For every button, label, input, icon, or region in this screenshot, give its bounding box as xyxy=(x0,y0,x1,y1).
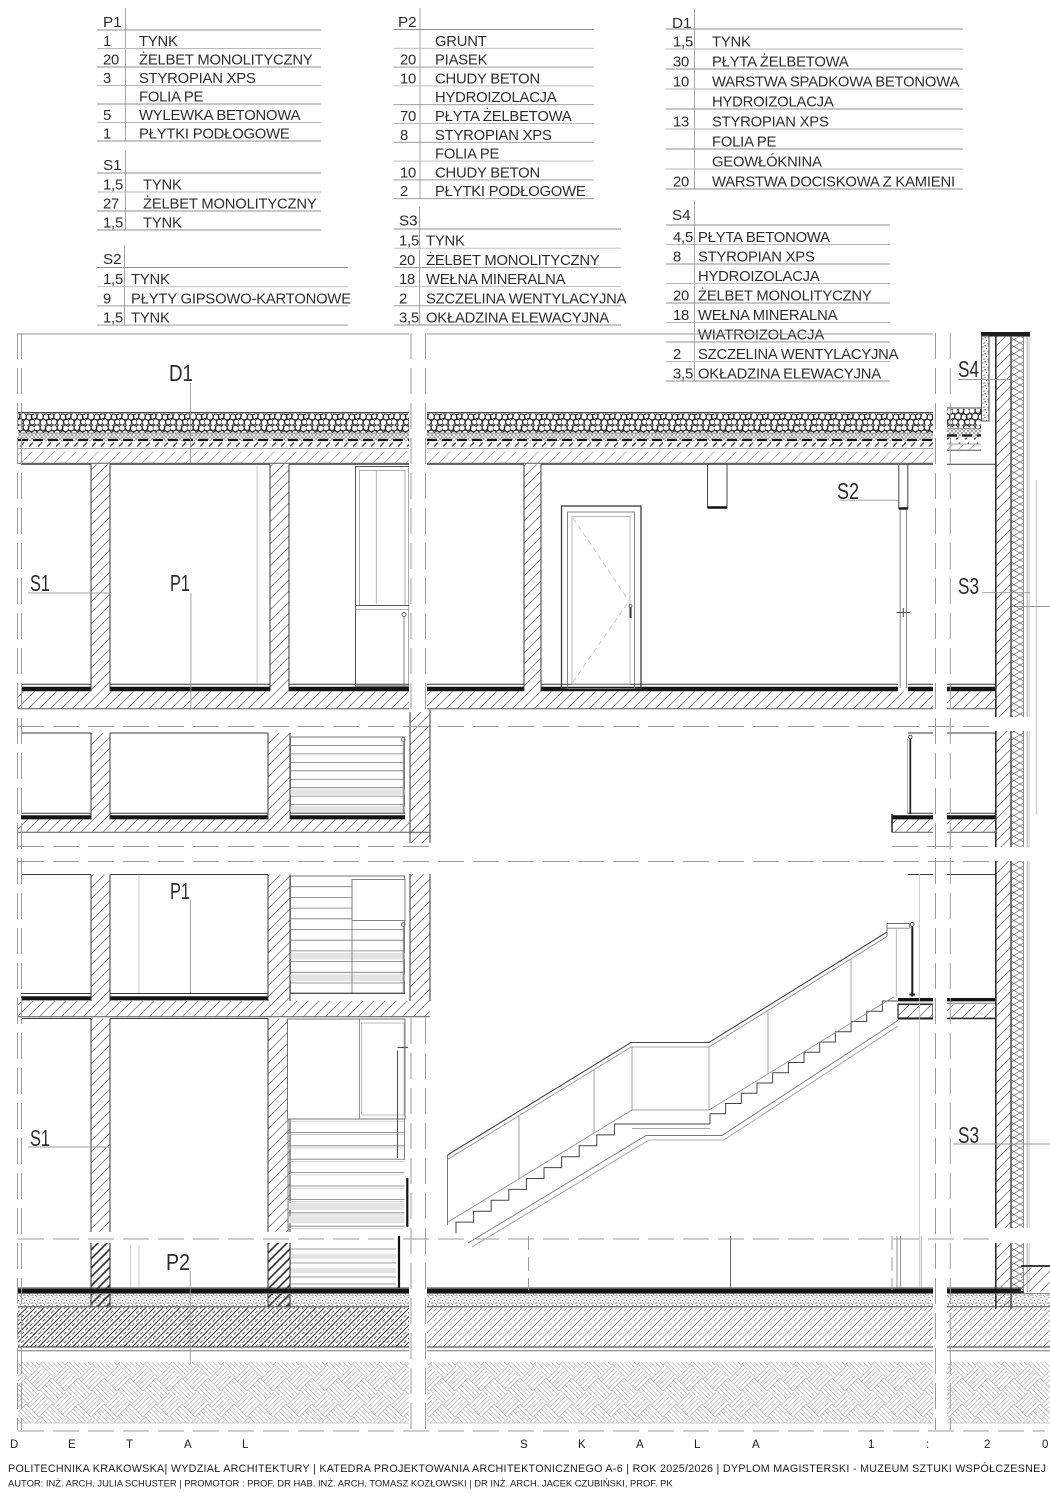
svg-text:T: T xyxy=(126,1439,133,1451)
svg-text:AUTOR: INŻ. ARCH. JULIA SCHUST: AUTOR: INŻ. ARCH. JULIA SCHUSTER | PROMO… xyxy=(8,1478,673,1489)
svg-text:WEŁNA MINERALNA: WEŁNA MINERALNA xyxy=(426,272,566,288)
svg-text:TYNK: TYNK xyxy=(426,234,465,250)
svg-text:18: 18 xyxy=(399,272,415,288)
svg-text:D1: D1 xyxy=(169,360,193,386)
svg-text:2: 2 xyxy=(984,1439,990,1451)
svg-text:PŁYTKI PODŁOGOWE: PŁYTKI PODŁOGOWE xyxy=(139,127,290,143)
svg-text:S3: S3 xyxy=(399,213,418,230)
svg-text:WYLEWKA BETONOWA: WYLEWKA BETONOWA xyxy=(139,108,301,124)
svg-text:P1: P1 xyxy=(170,570,190,596)
svg-text:S1: S1 xyxy=(30,570,50,596)
svg-text:GRUNT: GRUNT xyxy=(435,34,487,50)
svg-text:3,5: 3,5 xyxy=(399,311,419,327)
svg-text:ŻELBET MONOLITYCZNY: ŻELBET MONOLITYCZNY xyxy=(143,195,317,213)
svg-text:70: 70 xyxy=(400,109,416,125)
svg-text:1: 1 xyxy=(103,34,111,50)
svg-text:20: 20 xyxy=(400,53,416,69)
svg-text:TYNK: TYNK xyxy=(712,35,751,51)
svg-text:13: 13 xyxy=(673,115,689,131)
svg-text:1,5: 1,5 xyxy=(103,311,123,327)
svg-text:HYDROIZOLACJA: HYDROIZOLACJA xyxy=(698,269,820,285)
svg-text:1,5: 1,5 xyxy=(103,216,123,232)
svg-text:STYROPIAN XPS: STYROPIAN XPS xyxy=(698,250,815,266)
svg-text:8: 8 xyxy=(673,250,681,266)
svg-text:TYNK: TYNK xyxy=(143,178,182,194)
svg-text:1: 1 xyxy=(103,127,111,143)
svg-text:PŁYTA ŻELBETOWA: PŁYTA ŻELBETOWA xyxy=(712,53,849,71)
svg-text:S4: S4 xyxy=(958,356,979,382)
svg-text:WEŁNA MINERALNA: WEŁNA MINERALNA xyxy=(698,308,838,324)
svg-text:20: 20 xyxy=(673,289,689,305)
svg-text:L: L xyxy=(694,1439,701,1451)
svg-text:2: 2 xyxy=(399,291,407,307)
svg-text:1,5: 1,5 xyxy=(673,35,693,51)
svg-text:1,5: 1,5 xyxy=(103,178,123,194)
svg-text:ŻELBET MONOLITYCZNY: ŻELBET MONOLITYCZNY xyxy=(698,287,872,305)
svg-text:A: A xyxy=(636,1439,644,1451)
svg-text:TYNK: TYNK xyxy=(131,272,170,288)
svg-text:STYROPIAN XPS: STYROPIAN XPS xyxy=(139,71,256,87)
svg-text:10: 10 xyxy=(400,165,416,181)
svg-text:S3: S3 xyxy=(958,573,979,599)
svg-text:20: 20 xyxy=(399,253,415,269)
svg-text:WIATROIZOLACJA: WIATROIZOLACJA xyxy=(698,328,824,344)
svg-text:CHUDY BETON: CHUDY BETON xyxy=(435,71,540,87)
svg-text:S: S xyxy=(520,1439,528,1451)
svg-text:TYNK: TYNK xyxy=(131,311,170,327)
svg-text:TYNK: TYNK xyxy=(139,34,178,50)
svg-text:TYNK: TYNK xyxy=(143,216,182,232)
svg-text:1,5: 1,5 xyxy=(399,234,419,250)
svg-text:20: 20 xyxy=(673,175,689,191)
svg-text:FOLIA PE: FOLIA PE xyxy=(712,135,777,151)
svg-text:2: 2 xyxy=(400,184,408,200)
svg-text:PIASEK: PIASEK xyxy=(435,53,488,69)
svg-text:27: 27 xyxy=(103,197,119,213)
svg-text:K: K xyxy=(578,1439,586,1451)
svg-text:10: 10 xyxy=(400,71,416,87)
svg-text:P1: P1 xyxy=(103,14,122,31)
svg-text:S4: S4 xyxy=(672,207,691,224)
svg-text:SZCZELINA WENTYLACYJNA: SZCZELINA WENTYLACYJNA xyxy=(698,347,899,363)
svg-text:OKŁADZINA ELEWACYJNA: OKŁADZINA ELEWACYJNA xyxy=(426,311,609,327)
svg-text:4,5: 4,5 xyxy=(673,230,693,246)
svg-text:D: D xyxy=(10,1439,18,1451)
svg-text:FOLIA PE: FOLIA PE xyxy=(139,90,204,106)
svg-text:WARSTWA SPADKOWA BETONOWA: WARSTWA SPADKOWA BETONOWA xyxy=(712,75,959,91)
svg-text:A: A xyxy=(752,1439,760,1451)
svg-text:1,5: 1,5 xyxy=(103,272,123,288)
svg-text:1: 1 xyxy=(868,1439,874,1451)
svg-text:P2: P2 xyxy=(398,14,417,31)
svg-text:STYROPIAN XPS: STYROPIAN XPS xyxy=(435,128,552,144)
svg-text:POLITECHNIKA KRAKOWSKA| WYDZIA: POLITECHNIKA KRAKOWSKA| WYDZIAŁ ARCHITEK… xyxy=(8,1462,1046,1475)
svg-text:30: 30 xyxy=(673,55,689,71)
svg-text:PŁYTKI PODŁOGOWE: PŁYTKI PODŁOGOWE xyxy=(435,184,586,200)
svg-text:STYROPIAN XPS: STYROPIAN XPS xyxy=(712,115,829,131)
svg-text:A: A xyxy=(184,1439,192,1451)
svg-text:E: E xyxy=(68,1439,76,1451)
svg-text:2: 2 xyxy=(673,347,681,363)
svg-text:9: 9 xyxy=(103,291,111,307)
svg-text:WARSTWA DOCISKOWA Z KAMIENI: WARSTWA DOCISKOWA Z KAMIENI xyxy=(712,175,955,191)
svg-text:OKŁADZINA ELEWACYJNA: OKŁADZINA ELEWACYJNA xyxy=(698,367,881,383)
svg-text:PŁYTA ŻELBETOWA: PŁYTA ŻELBETOWA xyxy=(435,107,572,125)
svg-text:L: L xyxy=(242,1439,249,1451)
svg-text:GEOWŁÓKNINA: GEOWŁÓKNINA xyxy=(712,154,822,171)
svg-text:PŁYTA BETONOWA: PŁYTA BETONOWA xyxy=(698,230,830,246)
svg-text:3,5: 3,5 xyxy=(673,367,693,383)
svg-text:20: 20 xyxy=(103,53,119,69)
svg-text:S1: S1 xyxy=(103,157,122,174)
svg-text:ŻELBET MONOLITYCZNY: ŻELBET MONOLITYCZNY xyxy=(139,51,313,69)
svg-text:HYDROIZOLACJA: HYDROIZOLACJA xyxy=(712,95,834,111)
svg-text:0: 0 xyxy=(1042,1439,1048,1451)
svg-text:10: 10 xyxy=(673,75,689,91)
svg-text:HYDROIZOLACJA: HYDROIZOLACJA xyxy=(435,90,557,106)
svg-text:8: 8 xyxy=(400,128,408,144)
svg-text:PŁYTY GIPSOWO-KARTONOWE: PŁYTY GIPSOWO-KARTONOWE xyxy=(131,291,351,307)
svg-text:FOLIA PE: FOLIA PE xyxy=(435,147,500,163)
svg-text:18: 18 xyxy=(673,308,689,324)
svg-text:3: 3 xyxy=(103,71,111,87)
svg-text:5: 5 xyxy=(103,108,111,124)
svg-text:ŻELBET MONOLITYCZNY: ŻELBET MONOLITYCZNY xyxy=(426,251,600,269)
svg-text:P2: P2 xyxy=(166,1249,190,1275)
svg-text::: : xyxy=(926,1439,929,1451)
svg-text:S2: S2 xyxy=(103,251,122,268)
svg-text:SZCZELINA WENTYLACYJNA: SZCZELINA WENTYLACYJNA xyxy=(426,291,627,307)
svg-text:P1: P1 xyxy=(170,878,190,904)
svg-text:CHUDY BETON: CHUDY BETON xyxy=(435,165,540,181)
